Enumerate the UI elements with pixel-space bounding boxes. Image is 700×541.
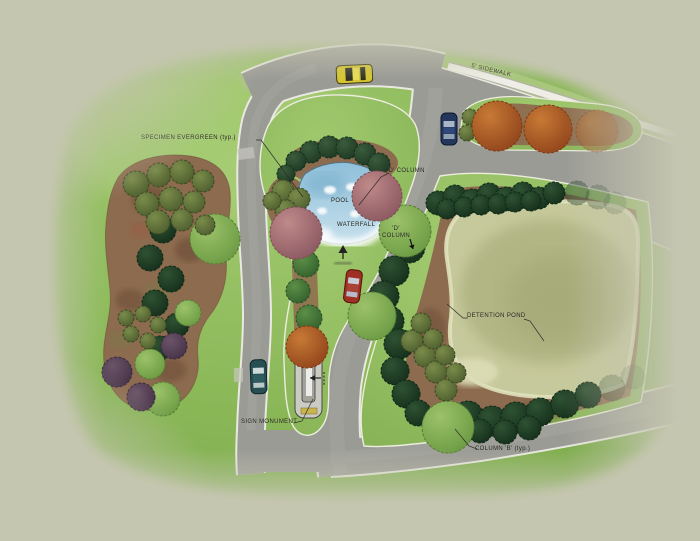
tree-ever2 (565, 181, 589, 205)
car-blue (441, 113, 457, 145)
tree-orange (286, 326, 328, 368)
tree-olive (159, 187, 183, 211)
tree-olive (263, 192, 281, 210)
car-yellow (336, 64, 373, 84)
tree-lite (135, 349, 165, 379)
tree-ever2 (575, 382, 601, 408)
label-detention-pond: DETENTION POND (467, 313, 526, 320)
tree-med (286, 279, 310, 303)
label-id-column-lower: 'D' COLUMN (381, 226, 411, 240)
tree-orange (524, 105, 572, 153)
tree-olive (170, 160, 194, 184)
tree-olive (147, 163, 171, 187)
tree-olive (446, 363, 466, 383)
tree-ever2 (543, 182, 565, 204)
tree-orange (472, 101, 522, 151)
label-specimen-evergreen: SPECIMEN EVERGREEN (typ.) (141, 135, 236, 142)
tree-olive (135, 306, 151, 322)
tree-purp (102, 357, 132, 387)
tree-olive (140, 333, 156, 349)
car-red (343, 269, 363, 304)
tree-olive (195, 215, 215, 235)
tree-ever2 (604, 192, 626, 214)
label-column-b: COLUMN 'B' (typ.) (475, 446, 530, 453)
tree-olive (146, 210, 170, 234)
tree-ever2 (521, 191, 541, 211)
tree-purp (161, 333, 187, 359)
tree-purp (127, 383, 155, 411)
label-waterfall: WATERFALL (337, 222, 375, 229)
label-sign-monument: SIGN MONUMENT (241, 419, 297, 426)
tree-olive (118, 310, 134, 326)
tree-lite (422, 401, 474, 453)
tree-olive (123, 326, 139, 342)
label-pool: POOL (331, 198, 349, 205)
tree-ever2 (517, 416, 541, 440)
tree-olive (150, 317, 166, 333)
tree-lite (175, 300, 201, 326)
tree-olive (171, 209, 193, 231)
tree-ever2 (599, 375, 625, 401)
detention-pond (446, 201, 638, 397)
tree-ever2 (621, 365, 645, 389)
tree-olive (192, 170, 214, 192)
tree-orange (576, 110, 618, 152)
tree-ever2 (158, 266, 184, 292)
car-teal (250, 359, 267, 394)
tree-ever2 (471, 195, 491, 215)
landscape-plan-canvas (0, 0, 700, 541)
tree-olive (435, 345, 455, 365)
tree-ever2 (493, 420, 517, 444)
tree-mauve (270, 207, 322, 259)
tree-mauve (352, 171, 402, 221)
tree-ever2 (137, 245, 163, 271)
landscape-site-plan: SPECIMEN EVERGREEN (typ.) 5' SIDEWALK 'D… (0, 0, 700, 541)
label-id-column-upper: 'D' COLUMN (387, 168, 425, 175)
